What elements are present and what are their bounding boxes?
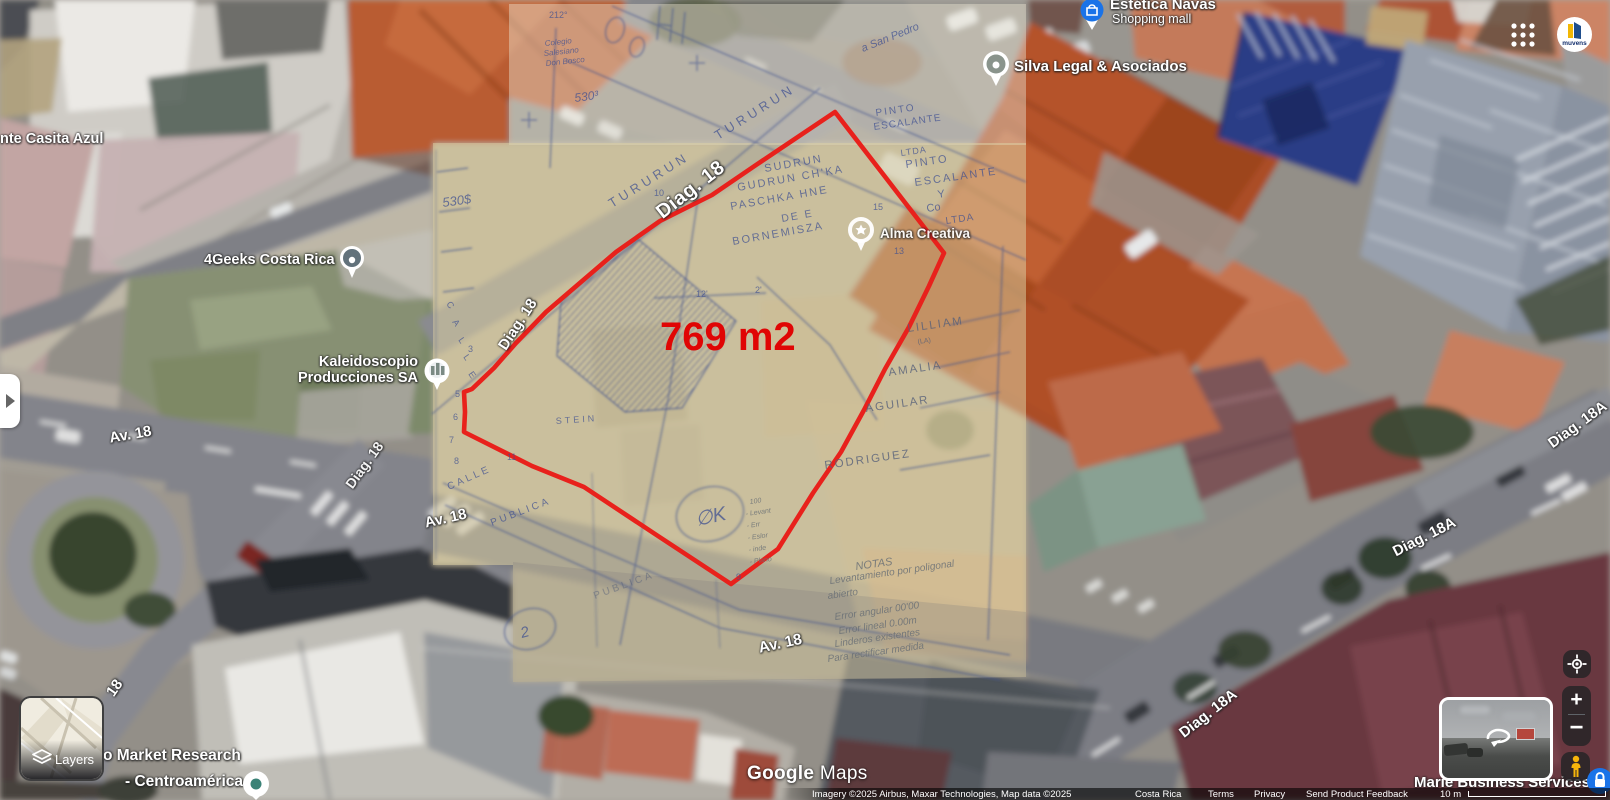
svg-text:muvens: muvens: [1562, 40, 1587, 47]
svg-text:Layers: Layers: [55, 752, 95, 767]
